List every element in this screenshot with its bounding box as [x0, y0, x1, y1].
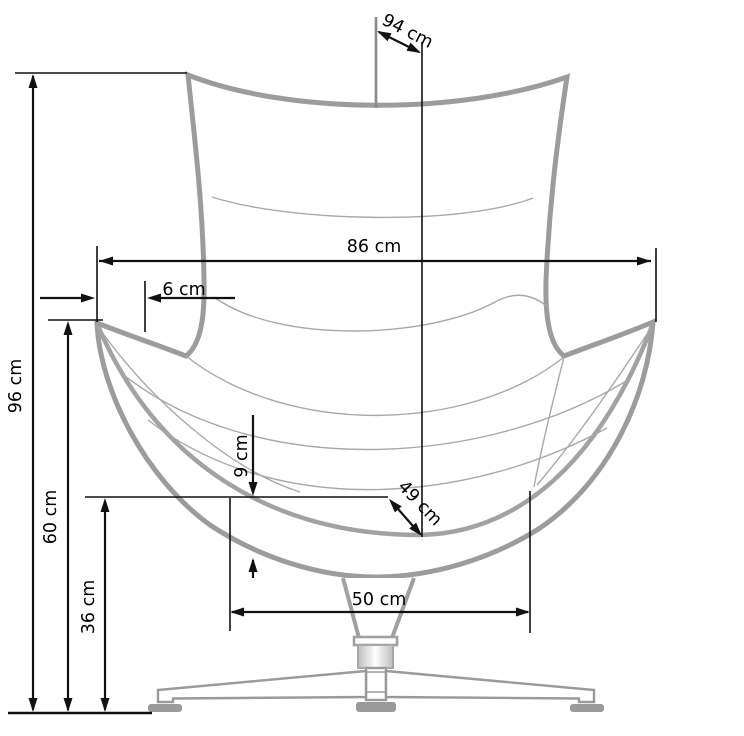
- arrowhead: [64, 698, 73, 712]
- foot-pad-center: [356, 702, 396, 712]
- base-arm-left: [158, 671, 366, 702]
- dim-50-label: 50 cm: [352, 590, 407, 610]
- arrowhead: [516, 608, 530, 617]
- arrowhead: [99, 257, 113, 266]
- stem-flange: [354, 637, 397, 645]
- dim-60-label: 60 cm: [41, 490, 61, 545]
- dim-86-label: 86 cm: [347, 237, 402, 257]
- dimension-50cm: 50 cm: [230, 491, 530, 633]
- arrowhead: [81, 294, 95, 303]
- chair-shell: [97, 75, 653, 577]
- dimension-60cm: 60 cm: [41, 320, 103, 712]
- arrowhead: [64, 321, 73, 335]
- chair-illustration: [97, 75, 653, 712]
- foot-pad-left: [148, 704, 182, 712]
- arrowhead: [637, 257, 651, 266]
- arrowhead: [230, 608, 244, 617]
- arrowhead: [147, 294, 161, 303]
- dim-9-label: 9 cm: [232, 434, 252, 477]
- dim-36-label: 36 cm: [79, 580, 99, 635]
- dim-6-label: 6 cm: [162, 280, 205, 300]
- dim-96-label: 96 cm: [6, 359, 26, 414]
- dimension-94cm: 94 cm: [376, 10, 436, 537]
- arrowhead: [29, 698, 38, 712]
- arrowhead: [29, 74, 38, 88]
- foot-pad-right: [570, 704, 604, 712]
- chair-dimension-drawing: 94 cm 86 cm 6 cm 96 cm 60 cm: [0, 0, 744, 736]
- base-arm-right: [386, 671, 594, 702]
- arrowhead: [101, 698, 110, 712]
- arrowhead: [101, 498, 110, 512]
- dimension-diagram-canvas: 94 cm 86 cm 6 cm 96 cm 60 cm: [0, 0, 744, 736]
- gas-cylinder: [358, 645, 393, 668]
- arrowhead: [249, 558, 258, 572]
- dimension-49cm: 49 cm: [389, 477, 446, 536]
